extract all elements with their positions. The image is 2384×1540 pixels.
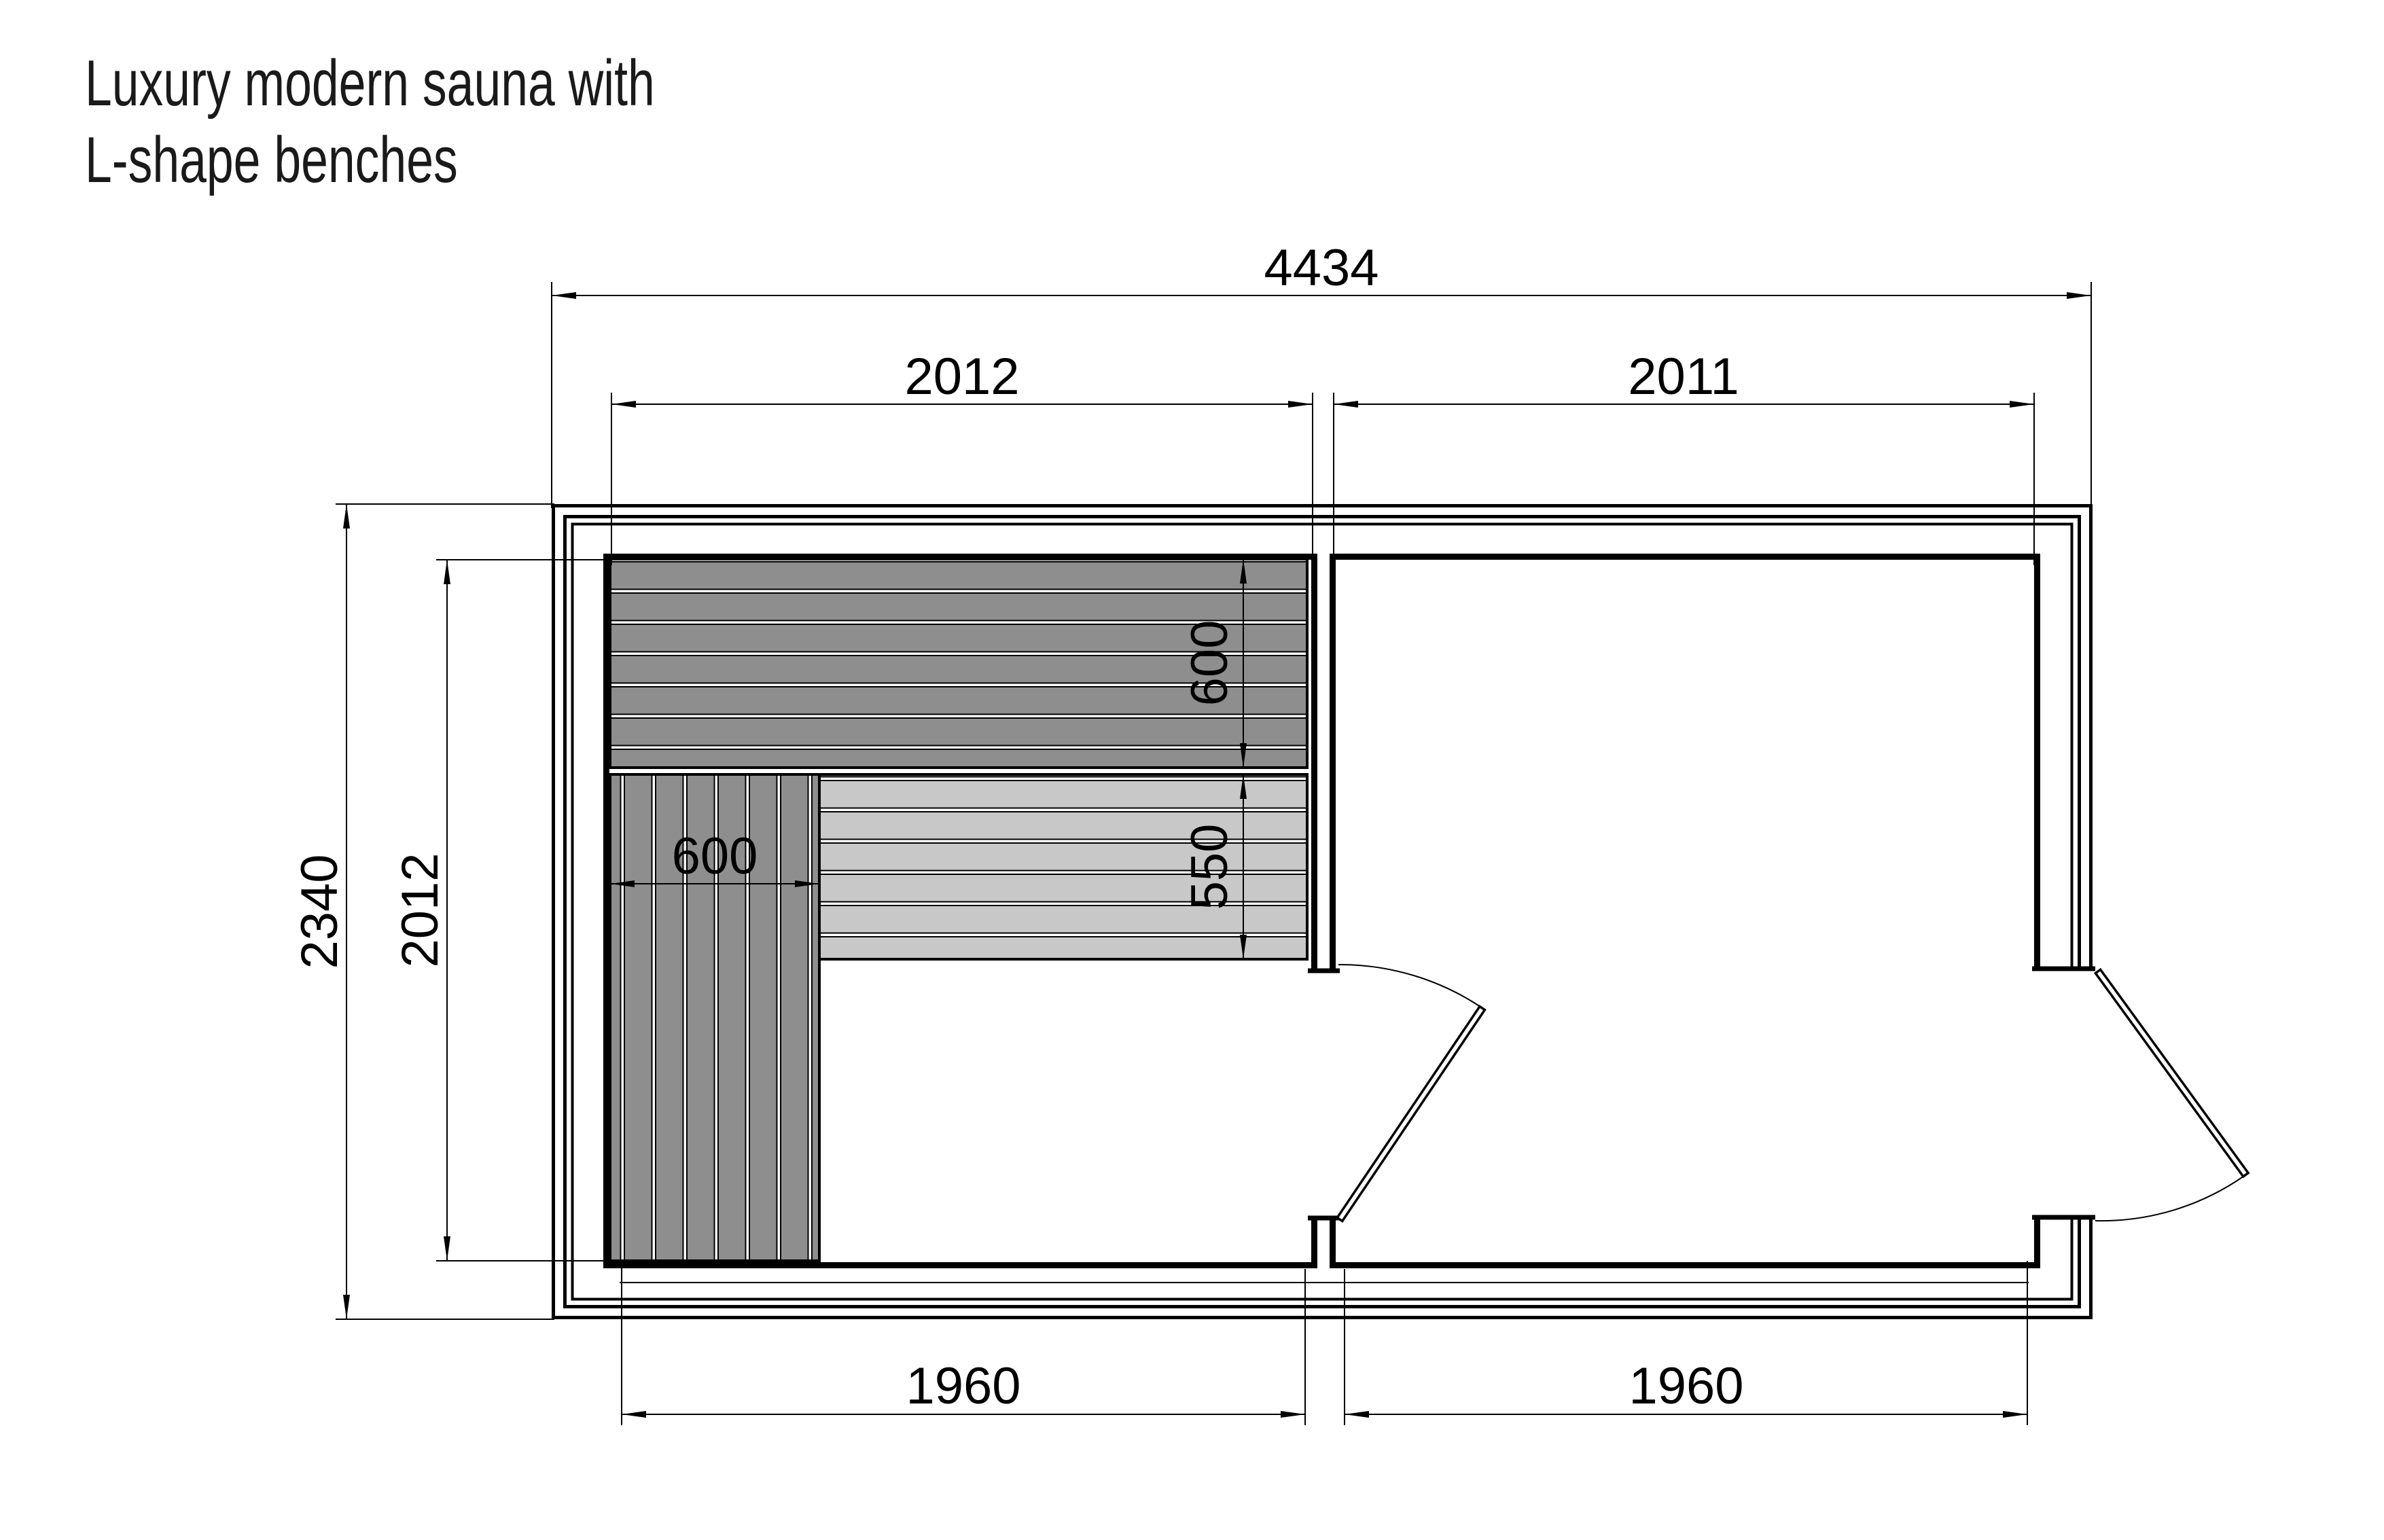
sauna-door-swing-arc (1338, 965, 1482, 1008)
dim-anteroom-floor-width: 1960 (1345, 1261, 2027, 1425)
dim-label-sauna-room-depth: 2012 (391, 853, 449, 967)
entrance-door-leaf (2095, 969, 2248, 1177)
dim-label-anteroom-width: 2011 (1628, 348, 1739, 406)
dim-sauna-room-width: 2012 (611, 348, 1313, 565)
dim-sauna-floor-width: 1960 (622, 1262, 1305, 1425)
dim-label-sauna-room-width: 2012 (904, 348, 1019, 406)
door-opening-mask-middle (1304, 972, 1342, 1217)
floor-plan: 4434 2012 2011 2340 2012 (0, 0, 2384, 1540)
dim-label-overall-width: 4434 (1264, 239, 1378, 297)
dim-label-anteroom-floor-width: 1960 (1629, 1357, 1743, 1415)
entrance-door-swing-arc (2095, 1175, 2246, 1221)
dim-label-upper-bench-depth: 600 (1181, 620, 1239, 706)
door-opening-mask-right (2028, 970, 2098, 1216)
dim-sauna-room-depth: 2012 (391, 560, 616, 1261)
floor-plan-canvas: Luxury modern sauna with L-shape benches (0, 0, 2384, 1540)
dim-anteroom-width: 2011 (1334, 348, 2034, 565)
entrance-door (2095, 969, 2248, 1221)
dim-label-lower-bench-depth: 550 (1181, 824, 1239, 910)
anteroom-wall (1333, 557, 2038, 1266)
dim-label-side-bench-width: 600 (672, 827, 758, 885)
dim-label-sauna-floor-width: 1960 (906, 1357, 1020, 1415)
sauna-door-leaf (1337, 1007, 1484, 1221)
dim-label-overall-depth: 2340 (291, 854, 349, 969)
sauna-door (1337, 965, 1484, 1221)
dim-overall-width: 4434 (552, 239, 2091, 508)
